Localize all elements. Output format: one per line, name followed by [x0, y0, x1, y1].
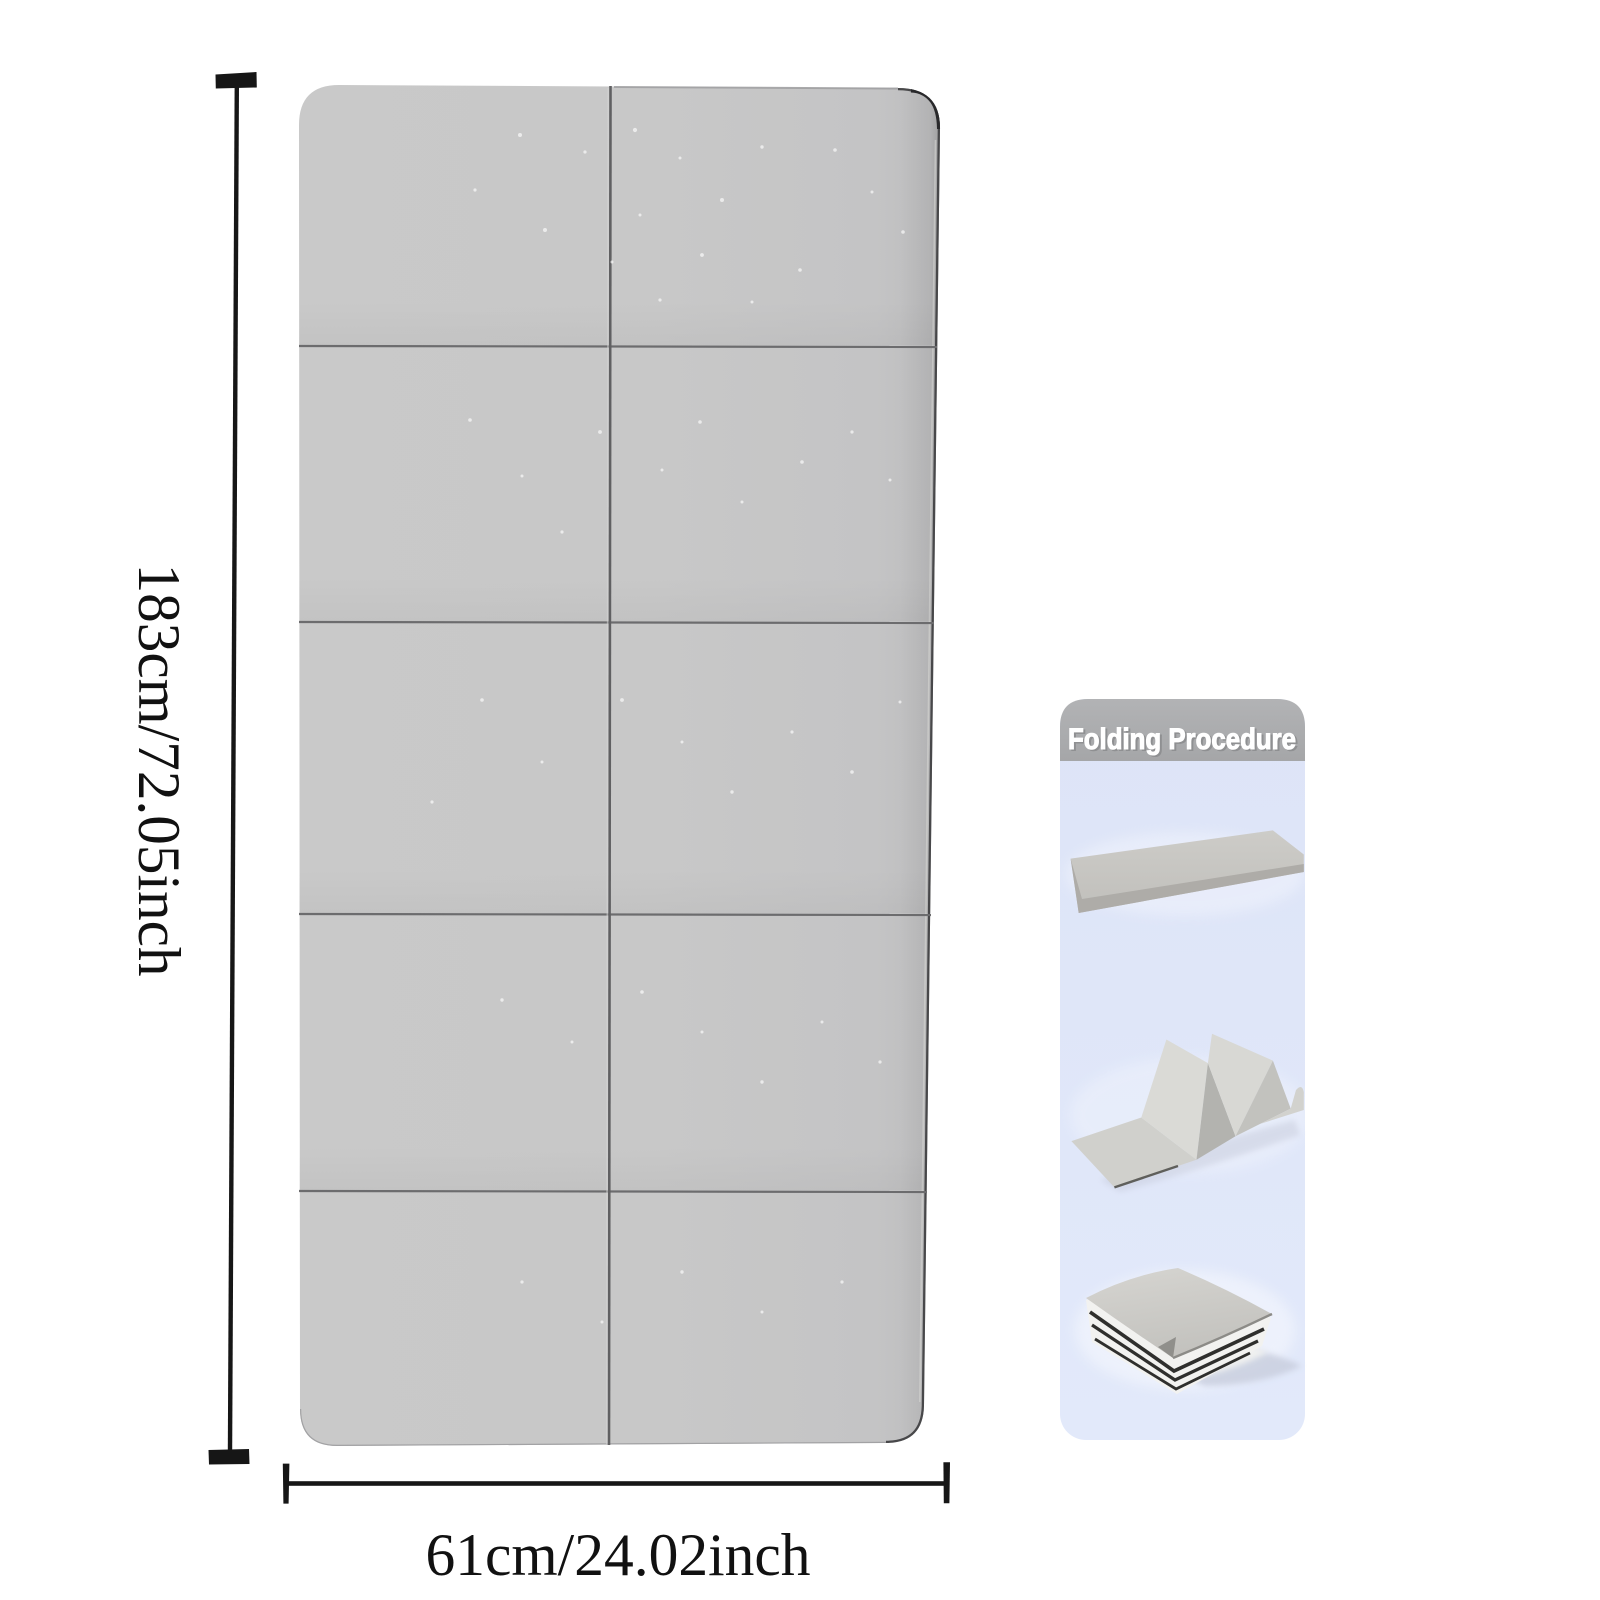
svg-text:183cm/72.05inch: 183cm/72.05inch: [126, 564, 192, 977]
svg-text:Folding Procedure: Folding Procedure: [1068, 723, 1296, 756]
svg-text:61cm/24.02inch: 61cm/24.02inch: [426, 1522, 811, 1588]
